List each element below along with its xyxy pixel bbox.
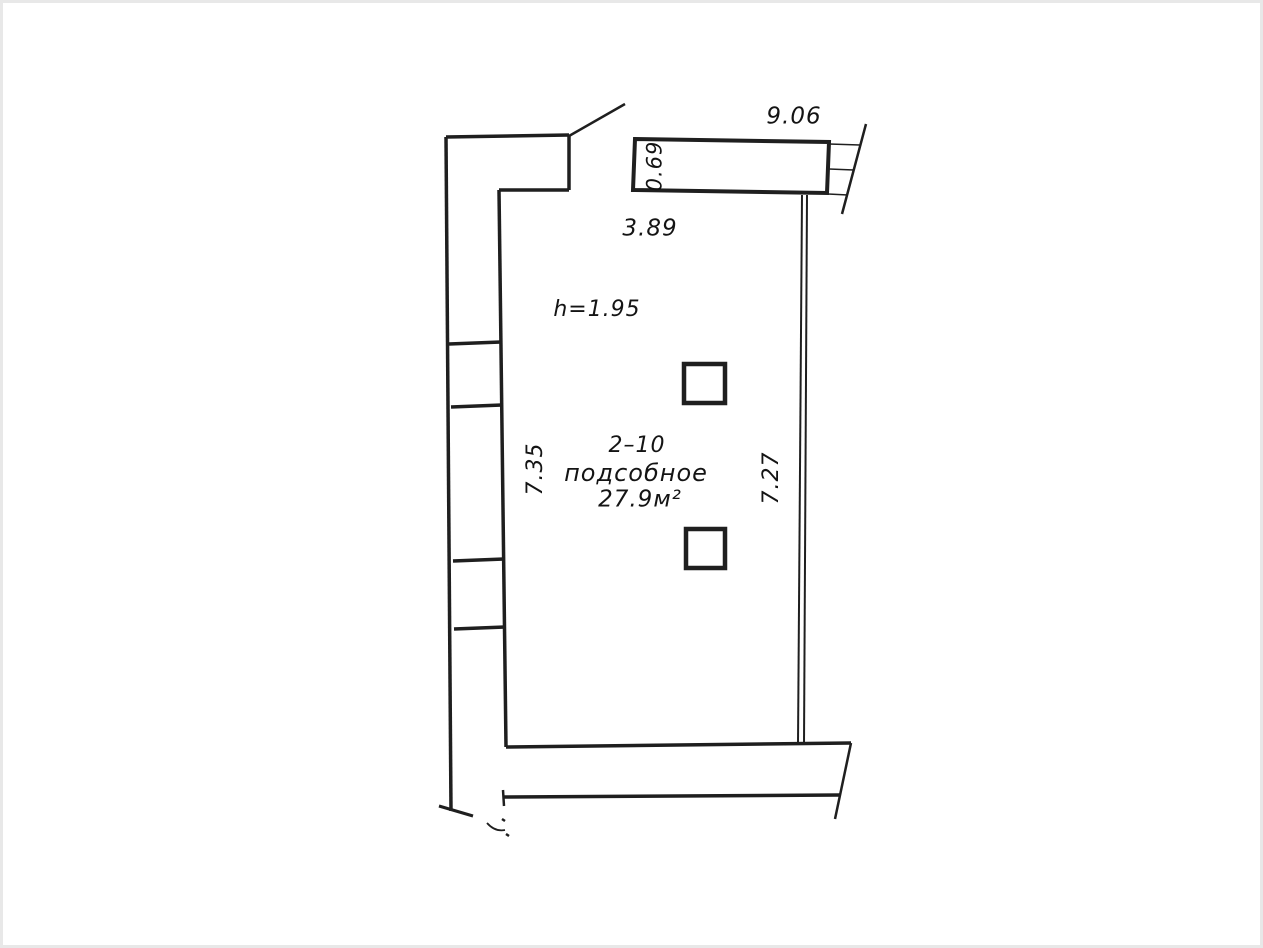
room-area-label: 27.9м²: [598, 489, 682, 512]
dimension-tick-3: [828, 194, 848, 195]
left-wall-top-edge: [446, 135, 569, 137]
entry-diagonal-line: [569, 104, 625, 136]
dim-inner-width-label: 3.89: [622, 218, 677, 241]
left-wall-divider-3: [453, 559, 504, 561]
scanned-page: 9.06 0.69 3.89 h=1.95 7.35 7.27 2–10 под…: [0, 0, 1263, 948]
bottom-wall-right-diagonal: [835, 743, 851, 819]
room-name-label: подсобное: [564, 461, 708, 485]
ceiling-height-label: h=1.95: [553, 299, 640, 321]
column-square-top: [684, 364, 725, 403]
stray-mark-dot-1: [502, 819, 505, 821]
left-wall-divider-2: [451, 405, 502, 407]
right-wall-line-a: [798, 195, 802, 744]
left-wall-divider-4: [454, 627, 505, 629]
left-wall-inner-line: [499, 190, 506, 747]
stray-mark-dash: [487, 823, 505, 830]
bottom-wall-inner-line: [506, 743, 851, 747]
dim-opening-depth-label: 0.69: [645, 141, 666, 192]
bottom-wall-left-tick: [503, 790, 504, 806]
left-wall-outer-line: [446, 137, 451, 811]
dimension-tick-1: [829, 144, 860, 145]
dimension-tick-2: [829, 169, 854, 170]
left-wall-divider-1: [449, 342, 501, 344]
column-square-bottom: [686, 529, 725, 568]
dim-overall-width-label: 9.06: [766, 106, 821, 129]
stray-mark-dot-2: [506, 834, 509, 836]
dim-right-wall-label: 7.27: [761, 452, 783, 505]
left-wall-bottom-tick: [439, 806, 473, 816]
right-wall-line-b: [804, 195, 807, 744]
dim-left-wall-label: 7.35: [525, 443, 547, 496]
bottom-wall-outer-line: [503, 795, 840, 797]
room-number-label: 2–10: [609, 435, 666, 457]
